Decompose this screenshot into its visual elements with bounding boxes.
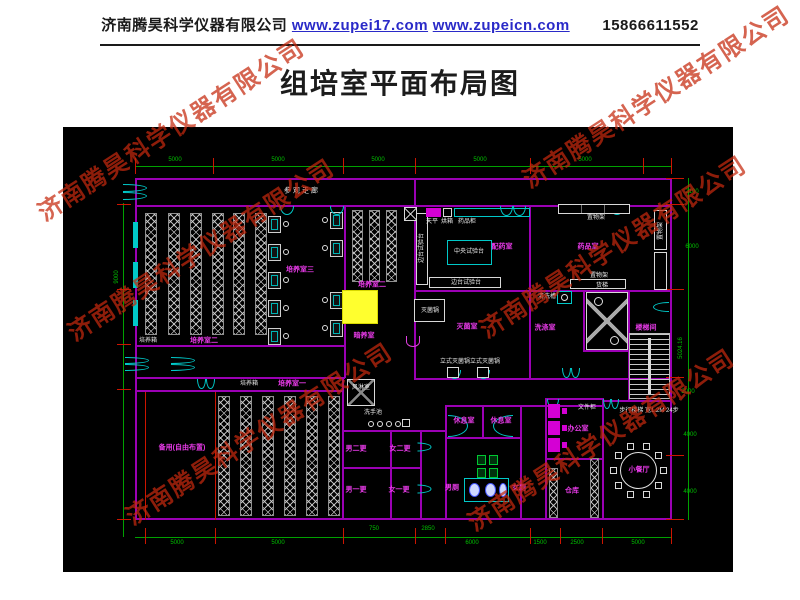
dimension-label: 2850 bbox=[421, 526, 434, 532]
room-label: 灭菌室 bbox=[457, 324, 478, 331]
wall bbox=[390, 430, 392, 520]
vertical-autoclave bbox=[477, 367, 489, 378]
room-label: 仓库 bbox=[565, 488, 579, 495]
dimension-label: 5000 bbox=[631, 540, 644, 546]
dimension-tick bbox=[666, 289, 684, 290]
room-label: 培养室二 bbox=[358, 282, 386, 289]
wall bbox=[670, 178, 672, 520]
dimension-tick bbox=[343, 528, 344, 544]
room-label: 楼梯间 bbox=[636, 325, 657, 332]
toilet-stall bbox=[477, 468, 486, 478]
door-leaf bbox=[125, 364, 149, 371]
dimension-label: 6000 bbox=[685, 244, 698, 250]
equipment-label: 培养箱 bbox=[240, 381, 258, 387]
dimension-label: 6000 bbox=[465, 540, 478, 546]
hand-basin bbox=[368, 421, 374, 427]
ac-fan-icon bbox=[322, 297, 328, 303]
dimension-label: 750 bbox=[369, 526, 379, 532]
culture-rack bbox=[328, 396, 340, 516]
dimension-tick bbox=[145, 528, 146, 544]
toilet-stall bbox=[489, 455, 498, 465]
hand-basin-counter bbox=[402, 419, 410, 427]
shelf bbox=[558, 204, 630, 214]
office-chair bbox=[562, 408, 567, 414]
dimension-tick bbox=[213, 158, 214, 174]
dining-chair bbox=[610, 467, 617, 474]
equipment-label: 立式灭菌锅 bbox=[470, 359, 500, 365]
room-label: 培养室二 bbox=[190, 338, 218, 345]
dining-chair bbox=[643, 491, 650, 498]
cabinet-strip bbox=[454, 208, 530, 217]
dimension-tick bbox=[671, 158, 672, 174]
equipment-label: 培养箱 bbox=[139, 338, 157, 344]
door-swing bbox=[418, 443, 432, 452]
equipment-label: 立式灭菌锅 bbox=[440, 359, 470, 365]
dimension-tick bbox=[671, 528, 672, 544]
dimension-tick bbox=[215, 528, 216, 544]
ac-unit bbox=[268, 300, 281, 317]
elevator-pulley-icon bbox=[594, 297, 603, 306]
ac-unit bbox=[330, 240, 343, 257]
dimension-tick bbox=[415, 158, 416, 174]
wall bbox=[135, 178, 672, 180]
wall bbox=[583, 290, 585, 352]
window bbox=[133, 222, 138, 248]
wall bbox=[342, 378, 344, 520]
hand-basin bbox=[377, 421, 383, 427]
culture-rack bbox=[386, 210, 397, 282]
equipment-label: 天平 bbox=[426, 219, 438, 225]
door-leaf bbox=[197, 379, 206, 389]
wall bbox=[342, 467, 420, 469]
dining-chair bbox=[615, 482, 622, 489]
equipment-label: 边台试验台 bbox=[451, 280, 481, 286]
equipment-label: 置物架 bbox=[587, 215, 605, 221]
wall bbox=[482, 405, 484, 437]
equipment-label: 货梯 bbox=[596, 283, 608, 289]
dimension-label: 5000 bbox=[271, 540, 284, 546]
equipment-label: 灭菌锅 bbox=[421, 308, 439, 314]
sink-icon bbox=[406, 336, 420, 347]
room-label: 休息室 bbox=[491, 418, 512, 425]
culture-rack bbox=[590, 458, 599, 518]
dimension-tick bbox=[117, 204, 131, 205]
culture-rack bbox=[352, 210, 363, 282]
dining-chair bbox=[660, 467, 667, 474]
room-label: 男厕 bbox=[445, 485, 459, 492]
door-leaf bbox=[171, 364, 195, 371]
equipment-box bbox=[426, 208, 441, 217]
dimension-tick bbox=[530, 528, 531, 544]
dimension-label: 5024.16 bbox=[678, 337, 684, 359]
wall bbox=[583, 350, 628, 352]
dimension-label: 5000 bbox=[271, 157, 284, 163]
door-swing bbox=[418, 485, 432, 494]
ac-fan-icon bbox=[283, 333, 289, 339]
office-chair bbox=[562, 425, 567, 431]
toilet-stall bbox=[489, 468, 498, 478]
dimension-tick bbox=[117, 389, 131, 390]
equipment-label: 中央试验台 bbox=[454, 249, 484, 255]
door-leaf bbox=[603, 399, 611, 409]
dimension-label: 5000 bbox=[168, 157, 181, 163]
dimension-line bbox=[123, 203, 124, 537]
dimension-tick bbox=[560, 528, 561, 544]
dimension-label: 5000 bbox=[473, 157, 486, 163]
dining-chair bbox=[627, 443, 634, 450]
ac-fan-icon bbox=[322, 245, 328, 251]
ac-fan-icon bbox=[283, 221, 289, 227]
door-swing bbox=[125, 357, 149, 371]
dimension-label: 1500 bbox=[533, 540, 546, 546]
ac-unit bbox=[268, 244, 281, 261]
equipment-label: 烘箱 bbox=[441, 219, 453, 225]
door-leaf bbox=[125, 357, 149, 364]
dimension-label: 4000 bbox=[683, 489, 696, 495]
shelf bbox=[654, 252, 667, 290]
dining-chair bbox=[655, 452, 662, 459]
wall bbox=[135, 345, 345, 347]
wall bbox=[445, 405, 447, 520]
dimension-tick bbox=[415, 528, 416, 544]
ac-fan-icon bbox=[283, 249, 289, 255]
dimension-tick bbox=[445, 528, 446, 544]
dining-chair bbox=[615, 452, 622, 459]
door-swing bbox=[197, 379, 215, 389]
dimension-label: 4000 bbox=[683, 432, 696, 438]
door-leaf bbox=[206, 379, 215, 389]
wall bbox=[445, 437, 520, 439]
room-label: 女二更 bbox=[390, 446, 411, 453]
ac-unit bbox=[268, 328, 281, 345]
dining-chair bbox=[643, 443, 650, 450]
highlight-room bbox=[342, 290, 378, 324]
dimension-tick bbox=[117, 344, 131, 345]
ac-fan-icon bbox=[283, 305, 289, 311]
hand-basin bbox=[395, 421, 401, 427]
dimension-line bbox=[688, 178, 689, 520]
dining-chair bbox=[655, 482, 662, 489]
door-swing bbox=[171, 357, 195, 371]
equipment-label: 洗手池 bbox=[364, 410, 382, 416]
freight-elevator bbox=[586, 292, 628, 350]
equipment-label: 文件柜 bbox=[578, 405, 596, 411]
office-desk bbox=[548, 404, 560, 418]
dimension-label: 5000 bbox=[170, 540, 183, 546]
dimension-tick bbox=[343, 158, 344, 174]
equipment-label: 药品柜 bbox=[458, 219, 476, 225]
ac-fan-icon bbox=[322, 217, 328, 223]
door-leaf bbox=[123, 192, 147, 200]
dimension-label: 5000 bbox=[371, 157, 384, 163]
dimension-line bbox=[135, 166, 672, 167]
toilet-stall bbox=[477, 455, 486, 465]
door-swing bbox=[123, 184, 147, 200]
wall bbox=[342, 430, 445, 432]
room-label: 休息室 bbox=[454, 418, 475, 425]
elevator-pulley-icon bbox=[610, 336, 619, 345]
ac-fan-icon bbox=[322, 325, 328, 331]
dining-chair bbox=[627, 491, 634, 498]
door-leaf bbox=[562, 368, 571, 378]
door-leaf bbox=[123, 184, 147, 192]
door-swing bbox=[562, 368, 580, 378]
office-desk bbox=[548, 421, 560, 435]
dimension-tick bbox=[666, 455, 684, 456]
door-leaf bbox=[571, 368, 580, 378]
vertical-autoclave bbox=[447, 367, 459, 378]
room-label: 洗涤室 bbox=[535, 325, 556, 332]
dimension-tick bbox=[666, 519, 684, 520]
door-swing bbox=[653, 302, 669, 312]
culture-rack bbox=[369, 210, 380, 282]
equipment-label: 边台试验台 bbox=[419, 233, 425, 263]
dimension-label: 2500 bbox=[570, 540, 583, 546]
room-label: 小餐厅 bbox=[629, 467, 650, 474]
room-label: 男一更 bbox=[346, 487, 367, 494]
door-leaf bbox=[171, 357, 195, 364]
room-label: 配药室 bbox=[492, 244, 513, 251]
dimension-tick bbox=[643, 158, 644, 174]
oven-box bbox=[443, 208, 452, 217]
fridge-icon bbox=[404, 207, 417, 221]
room-label: 女一更 bbox=[389, 487, 410, 494]
ac-unit bbox=[268, 272, 281, 289]
dimension-tick bbox=[602, 528, 603, 544]
room-label: 培养室三 bbox=[286, 267, 314, 274]
ac-fan-icon bbox=[283, 277, 289, 283]
hand-basin bbox=[386, 421, 392, 427]
room-label: 男二更 bbox=[346, 446, 367, 453]
